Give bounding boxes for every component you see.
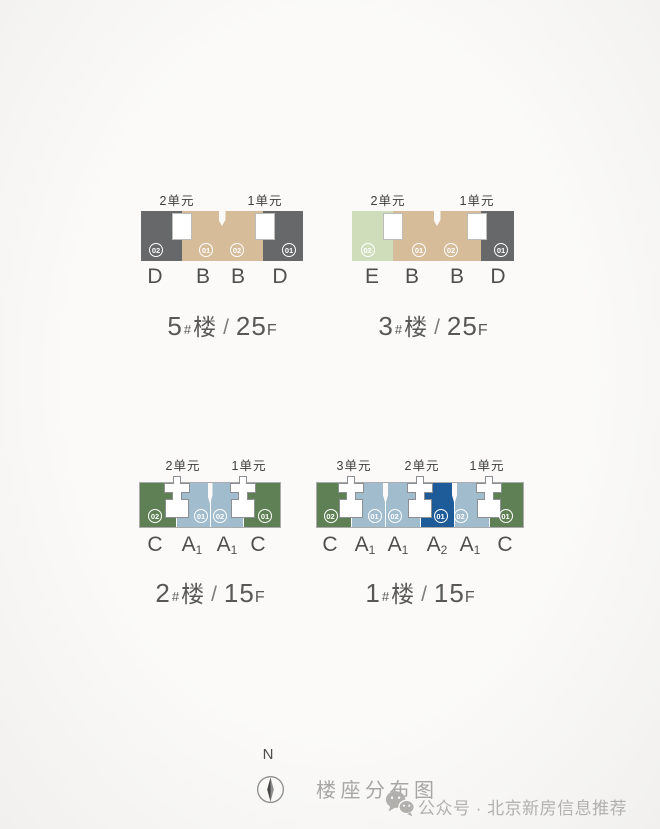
- room-badge: 02: [454, 509, 468, 523]
- elevator-core-icon: [407, 476, 433, 526]
- room-badge: 02: [230, 243, 244, 257]
- room-badge: 01: [282, 243, 296, 257]
- building-title: 3#楼/25F: [352, 308, 514, 342]
- unit-label: 2单元: [166, 455, 201, 474]
- building-title: 2#楼/15F: [140, 575, 280, 609]
- building-2-group: 2单元 1单元 02 01 02 01 C A1 A1 C 2#楼/15F: [140, 455, 280, 615]
- section-letter: D: [490, 265, 505, 289]
- unit-label: 1单元: [460, 190, 495, 209]
- room-badge: 02: [388, 509, 402, 523]
- elevator-core-icon: [476, 476, 502, 526]
- elevator-core-icon: [467, 213, 487, 240]
- section-letter: A2: [427, 533, 448, 557]
- building-1-shape: 02 01 02 01 02 01: [317, 483, 523, 527]
- room-badge: 02: [148, 509, 162, 523]
- section-letter: C: [497, 533, 512, 557]
- elevator-core-icon: [255, 213, 275, 240]
- section-letter: A1: [217, 533, 238, 557]
- room-badge: 02: [213, 509, 227, 523]
- building-title: 5#楼/25F: [141, 308, 303, 342]
- building-title: 1#楼/15F: [317, 575, 523, 609]
- unit-label: 2单元: [405, 455, 440, 474]
- section-letter: D: [147, 265, 162, 289]
- unit-label: 2单元: [160, 190, 195, 209]
- unit-label: 1单元: [248, 190, 283, 209]
- unit-label: 1单元: [470, 455, 505, 474]
- room-badge: 01: [199, 243, 213, 257]
- section-letter: C: [250, 533, 265, 557]
- section-letter: B: [450, 265, 464, 289]
- building-5-group: 2单元 1单元 02 01 02 01 D B B D 5#楼/25F: [141, 190, 303, 350]
- section-letter: B: [196, 265, 210, 289]
- section-letter: A1: [460, 533, 481, 557]
- section-letter: B: [405, 265, 419, 289]
- section-letter: E: [365, 265, 379, 289]
- room-badge: 01: [258, 509, 272, 523]
- building-3-group: 2单元 1单元 02 01 02 01 E B B D 3#楼/25F: [352, 190, 514, 350]
- elevator-core-icon: [338, 476, 364, 526]
- north-label: N: [263, 746, 274, 763]
- building-2-shape: 02 01 02 01: [140, 483, 280, 527]
- room-badge: 01: [499, 509, 513, 523]
- section-letter: B: [231, 265, 245, 289]
- elevator-core-icon: [164, 476, 190, 526]
- building-1-group: 3单元 2单元 1单元 02 01 02 01 02 01 C A1 A1 A2…: [317, 455, 523, 615]
- section-letter: D: [272, 265, 287, 289]
- room-badge: 01: [368, 509, 382, 523]
- elevator-core-icon: [230, 476, 256, 526]
- elevator-core-icon: [383, 213, 403, 240]
- section-letter: C: [322, 533, 337, 557]
- room-badge: 02: [324, 509, 338, 523]
- elevator-core-icon: [172, 213, 192, 240]
- section-letter: A1: [182, 533, 203, 557]
- building-3-shape: 02 01 02 01: [352, 211, 514, 261]
- room-badge: 01: [412, 243, 426, 257]
- section-letter: A1: [355, 533, 376, 557]
- room-badge: 01: [194, 509, 208, 523]
- wechat-icon: [385, 790, 415, 817]
- section-letter: C: [147, 533, 162, 557]
- room-badge: 02: [444, 243, 458, 257]
- section-letter: A1: [388, 533, 409, 557]
- room-badge: 01: [494, 243, 508, 257]
- building-5-shape: 02 01 02 01: [141, 211, 303, 261]
- room-badge: 01: [434, 509, 448, 523]
- compass-icon: [256, 775, 285, 804]
- unit-label: 3单元: [337, 455, 372, 474]
- room-badge: 02: [149, 243, 163, 257]
- unit-label: 1单元: [232, 455, 267, 474]
- room-badge: 02: [361, 243, 375, 257]
- unit-label: 2单元: [371, 190, 406, 209]
- watermark-text: 公众号 · 北京新房信息推荐: [418, 794, 627, 819]
